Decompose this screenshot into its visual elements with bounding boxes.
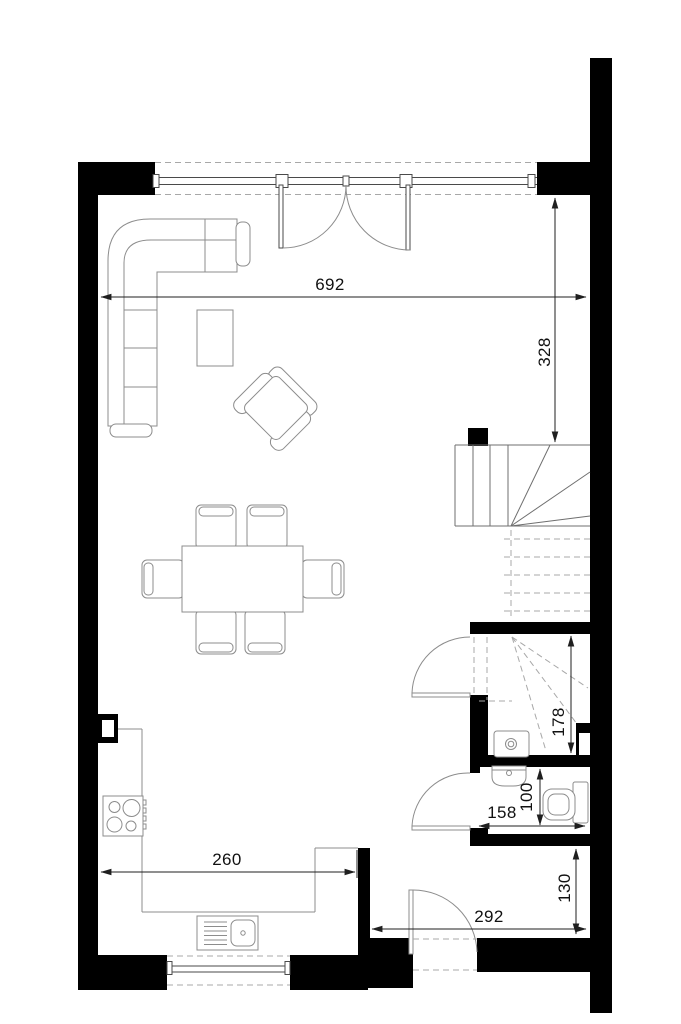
utility-sink [494,731,529,757]
coffee-table [197,310,233,366]
dining-chair [302,560,344,598]
staircase [455,445,590,526]
dim-kitchen-width: 260 [202,851,252,869]
dim-entry-width: 292 [464,908,514,926]
toilet [543,782,588,823]
wc-door[interactable] [412,773,470,830]
storage-door[interactable] [412,637,470,697]
dim-living-width: 692 [305,276,355,294]
dining-chair [245,610,285,654]
stove [103,796,146,836]
dining-chair [196,505,236,549]
kitchen-counter [118,729,358,912]
kitchen-sink [197,916,258,950]
kitchen-window [167,956,290,985]
window-top [153,175,537,188]
dim-wc-width: 158 [480,804,524,822]
dim-entry-depth: 130 [556,866,574,910]
dining-set [142,505,344,654]
floor-plan-canvas: 692 328 178 100 158 130 292 260 [0,0,681,1024]
dining-table [182,546,303,612]
dim-storage-depth: 178 [550,700,568,744]
dining-chair [142,560,184,598]
dining-chair [196,610,236,654]
plan-linework [0,0,681,1024]
entry-door[interactable] [409,890,477,970]
dim-stair-offset: 328 [536,330,554,374]
staircase-hidden-treads [474,530,590,751]
armchair [231,361,323,453]
dining-chair [247,505,287,549]
